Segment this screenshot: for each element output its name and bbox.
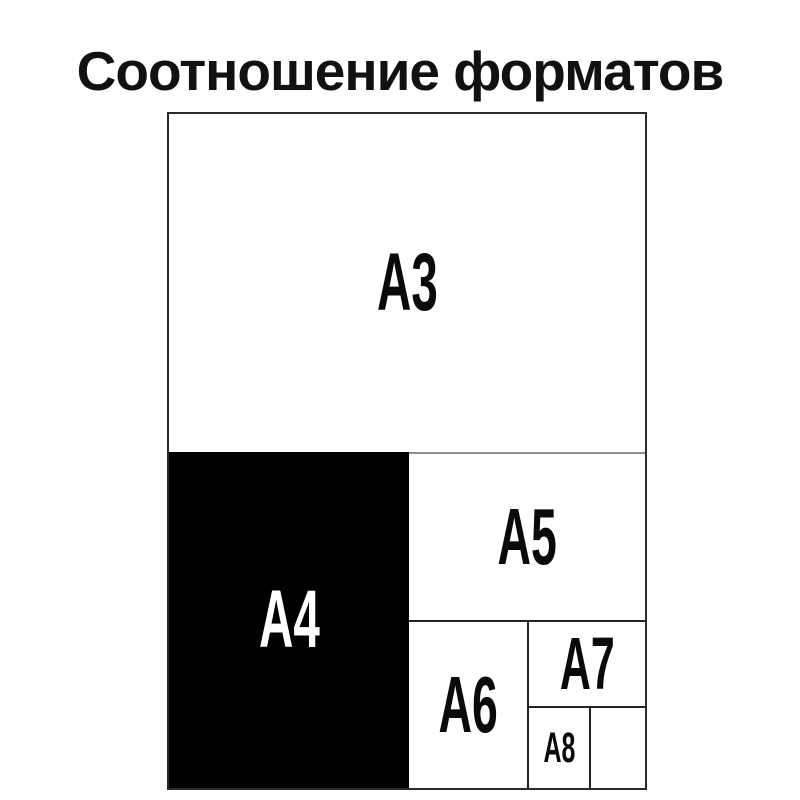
page: Соотношение форматов A3 A4 A5 A6 A7 A8 [0,0,800,800]
page-title: Соотношение форматов [0,41,800,102]
format-a7-region: A7 [529,622,645,708]
format-diagram: A3 A4 A5 A6 A7 A8 [167,112,647,790]
format-a8-label: A8 [543,727,575,770]
format-a5-label: A5 [497,497,556,577]
format-a3-label: A3 [377,242,438,324]
format-a3-region: A3 [169,114,645,452]
format-a4-region: A4 [169,452,409,788]
format-a6-label: A6 [438,665,497,745]
format-a4-label: A4 [259,579,320,661]
format-a7-label: A7 [560,627,615,701]
format-a5-region: A5 [409,452,645,622]
format-a6-region: A6 [409,622,529,788]
residual-empty-cell [591,708,645,788]
format-a8-region: A8 [529,708,591,788]
